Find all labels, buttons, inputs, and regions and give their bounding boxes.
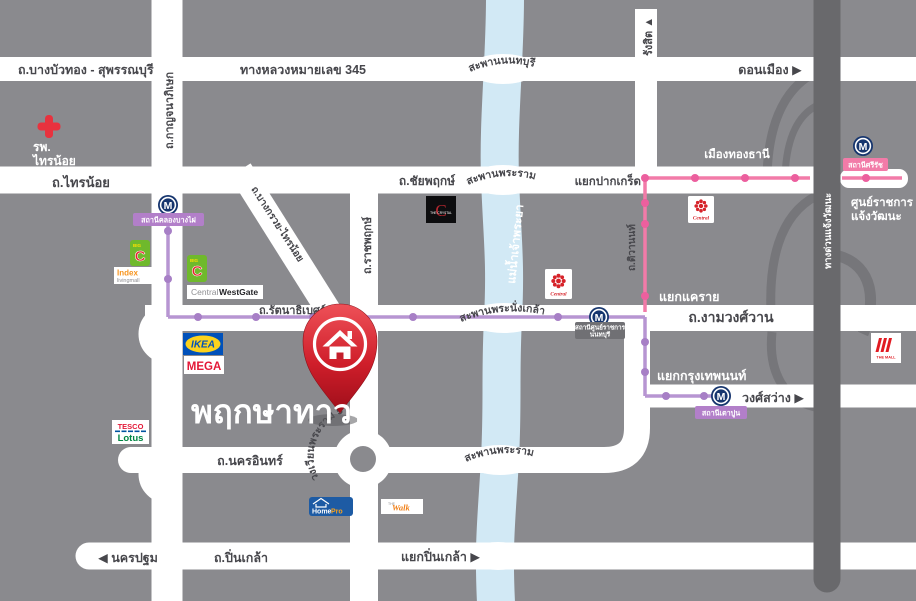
label-pinklao-junction: แยกปิ่นเกล้า ▶ [401, 548, 480, 564]
big-c-logo-2: BIG C [187, 255, 207, 282]
label-nakhon-pathom: ◀ นครปฐม [98, 551, 158, 566]
tesco-text: TESCO [118, 422, 144, 431]
label-chaiyaphruek: ถ.ชัยพฤกษ์ [399, 174, 455, 188]
central-westgate-central: Central [191, 287, 219, 297]
chao-phraya-river [495, 0, 505, 601]
label-sai-noi: ถ.ไทรน้อย [52, 174, 110, 190]
central-script-text: Central [693, 216, 710, 222]
label-tiwanon: ถ.ติวานนท์ [626, 224, 638, 271]
mega-text: MEGA [187, 361, 222, 373]
label-krungthep-non: แยกกรุงเทพนนท์ [657, 368, 746, 384]
label-kanchanaphisek: ถ.กาญจนาภิเษก [163, 72, 176, 149]
the-walk-logo: THE Walk [381, 499, 423, 514]
big-c-logo-1: BIG C [130, 240, 150, 266]
central-westgate-logo: Central WestGate [187, 285, 263, 299]
the-mall-text: THE MALL [876, 356, 896, 360]
tesco-lotus-logo: TESCO Lotus [112, 420, 149, 444]
central-westgate-westgate: WestGate [219, 287, 258, 297]
index-livingmall-logo: Index livingmall [114, 267, 153, 284]
mrt-si-rat-icon [853, 136, 873, 156]
big-c-c-text: C [192, 263, 203, 280]
crystal-text: THE CRYSTAL [430, 211, 452, 215]
label-khae-rai: แยกแคราย [659, 290, 719, 304]
house-door [337, 353, 344, 360]
rama5-roundabout-inner [350, 446, 376, 472]
label-highway-345: ทางหลวงหมายเลข 345 [240, 63, 366, 77]
mrt-tao-poon-icon [711, 386, 731, 406]
label-expressway: ทางด่วนแจ้งวัฒนะ [822, 193, 834, 269]
mrt-gov-center-label-2: นนทบุรี [590, 331, 611, 339]
map-canvas: M [0, 0, 916, 601]
label-ngamwongwan: ถ.งามวงศ์วาน [688, 309, 774, 325]
the-crystal-logo: C THE CRYSTAL [426, 196, 456, 223]
label-pak-kret-junction: แยกปากเกร็ด [575, 173, 641, 188]
hospital-label-2: ไทรน้อย [31, 153, 76, 168]
label-ratchaphruek: ถ.ราชพฤกษ์ [361, 216, 374, 274]
mrt-khlong-bang-phai-icon [158, 195, 178, 215]
mega-logo: MEGA [184, 356, 224, 374]
hospital-label-1: รพ. [33, 140, 51, 154]
homepro-home: Home [312, 509, 332, 516]
central-rattanathibet-logo: Central [545, 269, 572, 299]
label-gov-complex-1: ศูนย์ราชการ [851, 195, 914, 210]
lotus-text: Lotus [118, 433, 144, 444]
big-c-c-text: C [135, 248, 146, 265]
livingmall-text: livingmall [117, 278, 140, 284]
ikea-text: IKEA [191, 340, 215, 351]
label-rangsit: รังสิต ▲ [642, 17, 655, 56]
the-walk-walk: Walk [392, 503, 411, 513]
central-chaengwatthana-logo: Central [688, 196, 714, 223]
homepro-logo: Home Pro [309, 497, 353, 516]
index-text: Index [117, 269, 138, 278]
tesco-dashes [115, 431, 146, 433]
central-flower-icon [551, 274, 565, 288]
the-mall-logo: THE MALL [871, 333, 901, 363]
map-background [0, 0, 916, 601]
map-svg: M [0, 0, 916, 601]
label-wong-sawang: วงศ์สว่าง ▶ [742, 390, 804, 405]
mrt-si-rat-label: สถานีศรีรัช [848, 161, 883, 170]
label-bang-bua-thong: ถ.บางบัวทอง - สุพรรณบุรี [18, 63, 154, 78]
label-pinklao-road: ถ.ปิ่นเกล้า [214, 549, 268, 565]
label-nakhon-in: ถ.นครอินทร์ [217, 453, 283, 468]
mrt-khlong-bang-phai-label: สถานีคลองบางไผ่ [141, 216, 196, 225]
central-script-text: Central [550, 292, 567, 298]
label-don-mueang: ดอนเมือง ▶ [738, 63, 802, 77]
label-gov-complex-2: แจ้งวัฒนะ [851, 210, 902, 223]
page-title: พฤกษาทาวน์ [191, 393, 375, 430]
homepro-pro: Pro [331, 509, 343, 516]
label-mueang-thong-thani: เมืองทองธานี [704, 148, 770, 161]
mrt-tao-poon-label: สถานีเตาปูน [702, 409, 740, 419]
ikea-logo: IKEA [183, 333, 223, 355]
